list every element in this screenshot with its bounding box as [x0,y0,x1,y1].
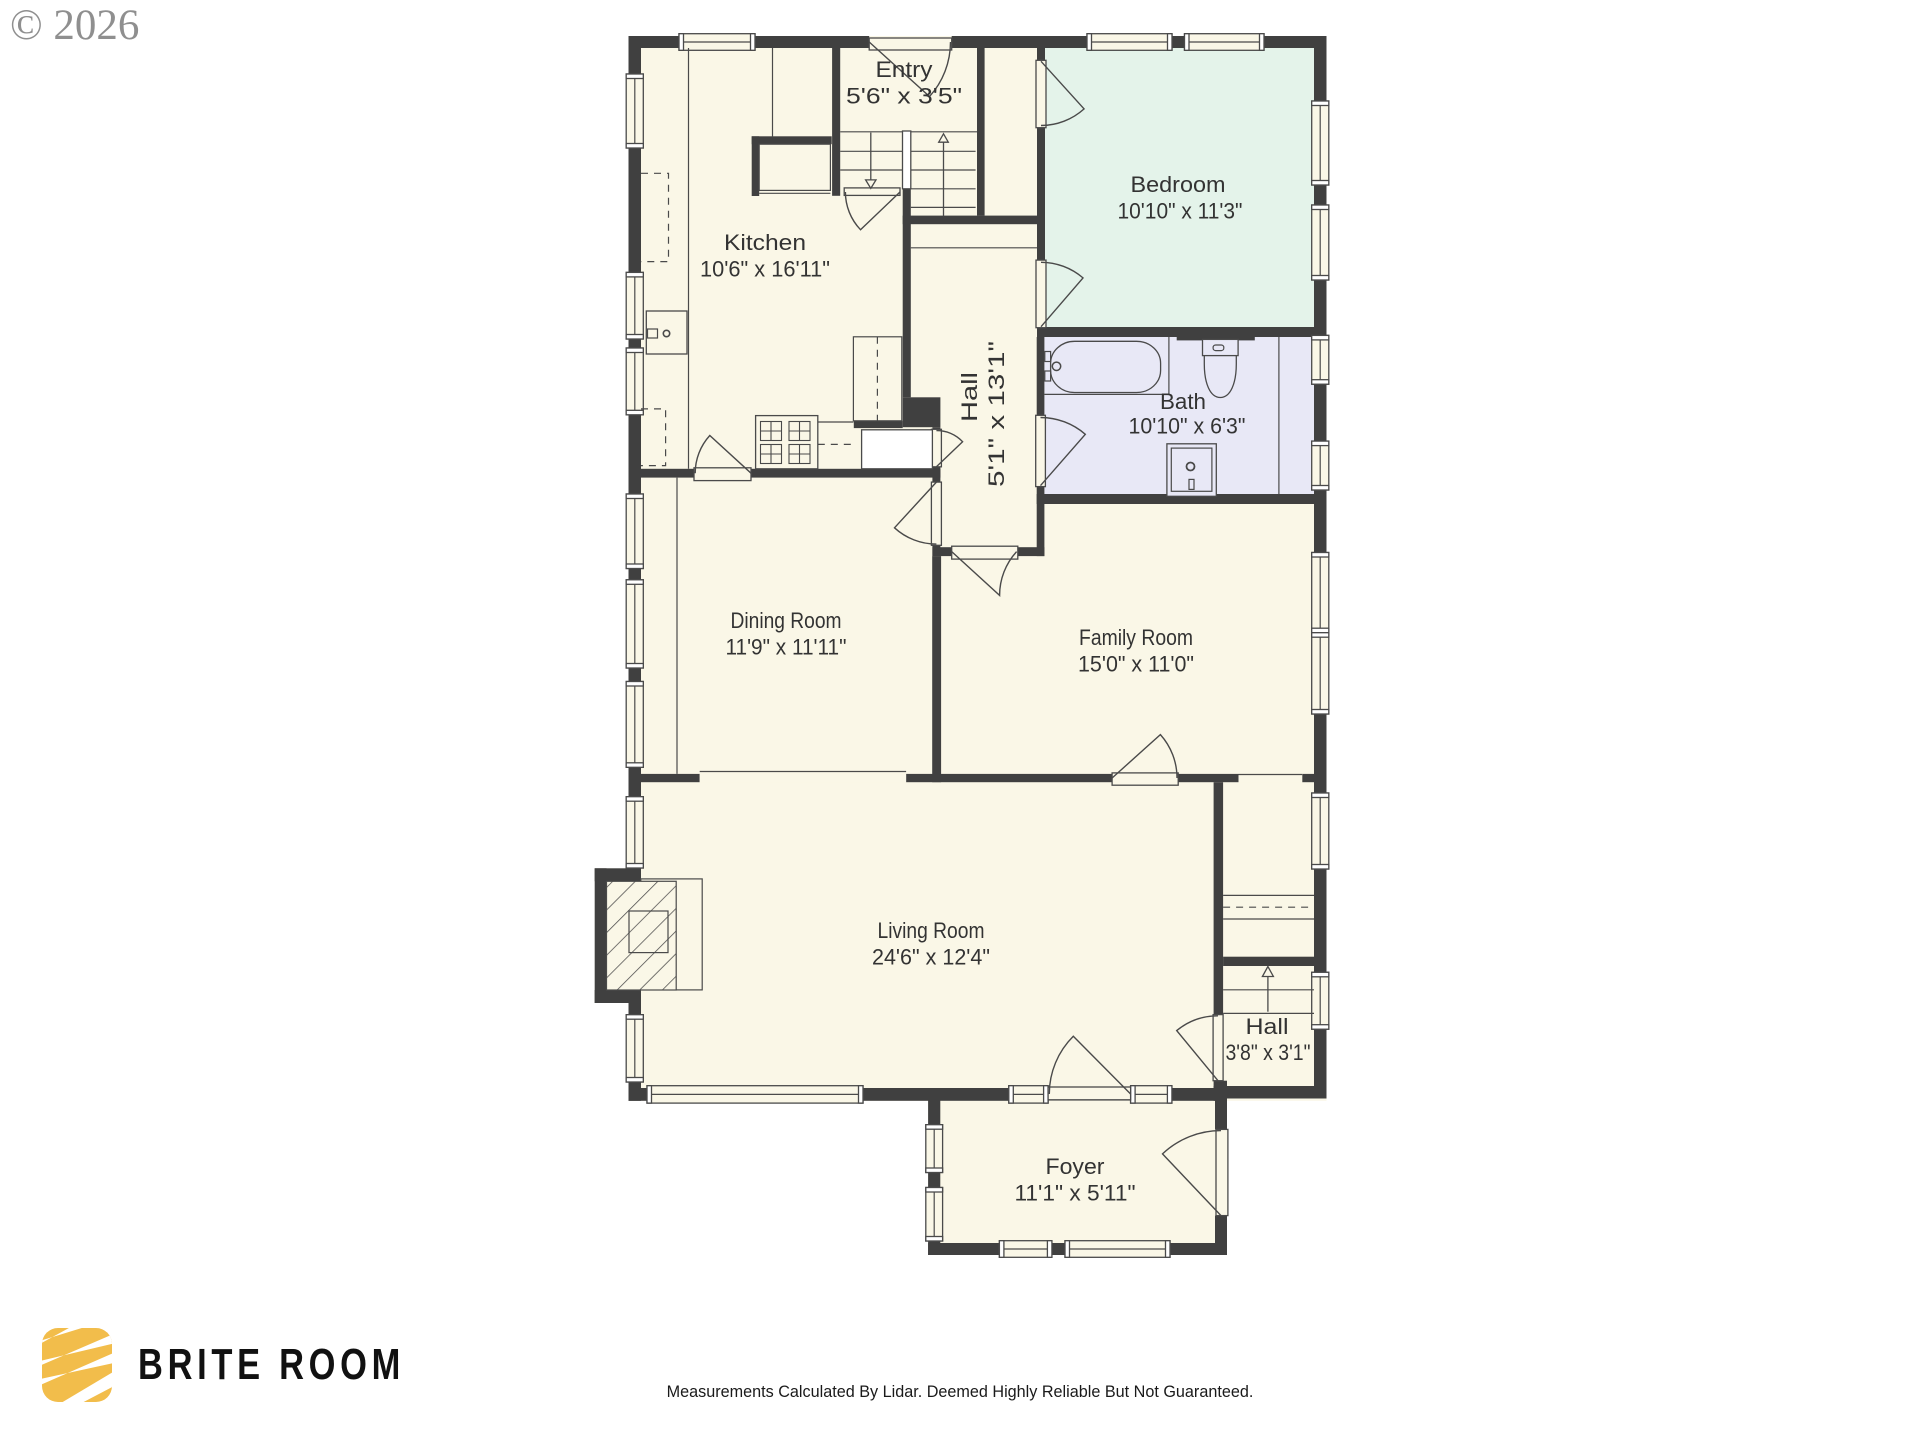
svg-text:Kitchen: Kitchen [724,230,806,255]
svg-text:Living Room: Living Room [878,918,985,943]
svg-text:Hall: Hall [1246,1014,1289,1039]
svg-text:Hall: Hall [957,372,982,422]
svg-text:Bath: Bath [1160,389,1206,414]
svg-text:10'10" x 6'3": 10'10" x 6'3" [1129,414,1246,439]
svg-text:Foyer: Foyer [1046,1154,1106,1179]
svg-text:24'6" x 12'4": 24'6" x 12'4" [872,945,990,970]
svg-text:© 2026: © 2026 [10,2,139,49]
svg-text:15'0" x 11'0": 15'0" x 11'0" [1078,652,1194,677]
svg-text:10'6" x 16'11": 10'6" x 16'11" [700,257,830,282]
svg-text:3'8" x 3'1": 3'8" x 3'1" [1226,1040,1311,1065]
svg-text:Bedroom: Bedroom [1131,172,1226,197]
svg-text:Entry: Entry [876,57,934,82]
svg-text:10'10" x 11'3": 10'10" x 11'3" [1118,199,1243,224]
svg-text:Family Room: Family Room [1079,625,1193,650]
svg-text:11'1" x 5'11": 11'1" x 5'11" [1015,1181,1136,1206]
svg-text:5'1" x 13'1": 5'1" x 13'1" [984,341,1009,487]
svg-text:Dining Room: Dining Room [731,608,842,633]
svg-text:BRITE ROOM: BRITE ROOM [138,1340,405,1389]
svg-text:11'9" x 11'11": 11'9" x 11'11" [726,635,847,660]
svg-text:5'6" x 3'5": 5'6" x 3'5" [846,84,962,109]
svg-text:Measurements Calculated By Lid: Measurements Calculated By Lidar. Deemed… [667,1383,1254,1401]
